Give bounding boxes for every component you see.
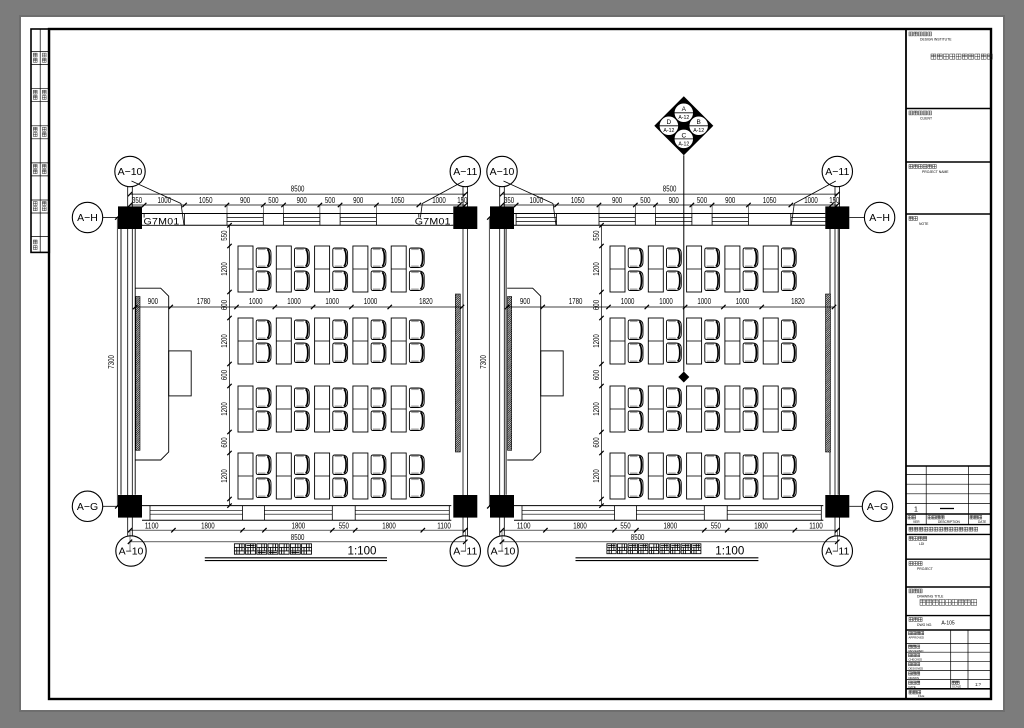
svg-text:550: 550 [220, 230, 229, 241]
svg-text:SCALE: SCALE [952, 685, 961, 689]
svg-text:1800: 1800 [292, 521, 306, 530]
svg-text:1200: 1200 [220, 469, 229, 483]
svg-text:8500: 8500 [291, 533, 305, 542]
svg-text:900: 900 [669, 196, 680, 205]
svg-text:1050: 1050 [199, 196, 213, 205]
svg-text:A-12: A-12 [663, 128, 674, 134]
svg-text:DESCRIPTION: DESCRIPTION [938, 520, 960, 524]
svg-text:1200: 1200 [220, 402, 229, 416]
svg-text:550: 550 [592, 230, 601, 241]
svg-text:350: 350 [504, 196, 515, 205]
svg-text:1800: 1800 [382, 521, 396, 530]
svg-text:1100: 1100 [437, 521, 451, 530]
svg-text:150: 150 [829, 196, 840, 205]
svg-text:1780: 1780 [569, 297, 583, 306]
svg-text:900: 900 [297, 196, 308, 205]
svg-text:1050: 1050 [763, 196, 777, 205]
svg-text:1000: 1000 [659, 297, 673, 306]
svg-text:1200: 1200 [220, 262, 229, 276]
svg-text:DRAWING TITLE: DRAWING TITLE [917, 595, 944, 599]
svg-text:1200: 1200 [220, 334, 229, 348]
svg-text:7300: 7300 [107, 355, 116, 369]
svg-text:B: B [697, 119, 701, 126]
svg-text:1200: 1200 [592, 402, 601, 416]
svg-text:1000: 1000 [530, 196, 544, 205]
svg-text:G7M01: G7M01 [415, 216, 451, 226]
svg-text:600: 600 [220, 299, 229, 310]
svg-text:CLIENT: CLIENT [920, 117, 932, 121]
svg-text:FILE: FILE [918, 694, 924, 698]
svg-text:1820: 1820 [419, 297, 433, 306]
svg-text:DWG NO.: DWG NO. [917, 623, 932, 627]
svg-text:1100: 1100 [517, 521, 531, 530]
svg-text:150: 150 [457, 196, 468, 205]
svg-text:900: 900 [725, 196, 736, 205]
svg-text:550: 550 [339, 521, 350, 530]
svg-text:D: D [667, 119, 672, 126]
svg-text:8500: 8500 [663, 185, 677, 194]
svg-text:DRAWN: DRAWN [909, 676, 919, 680]
svg-text:600: 600 [592, 299, 601, 310]
svg-text:900: 900 [240, 196, 251, 205]
svg-text:A−10: A−10 [490, 166, 515, 178]
svg-text:1:100: 1:100 [715, 543, 744, 557]
svg-text:A−10: A−10 [118, 166, 143, 178]
svg-text:1800: 1800 [664, 521, 678, 530]
svg-text:350: 350 [132, 196, 143, 205]
svg-text:1000: 1000 [158, 196, 172, 205]
svg-text:A−11: A−11 [825, 166, 849, 178]
svg-text:1050: 1050 [571, 196, 585, 205]
svg-text:C: C [681, 132, 686, 139]
svg-text:A−H: A−H [77, 212, 98, 224]
svg-text:VER: VER [913, 520, 920, 524]
svg-text:600: 600 [592, 437, 601, 448]
svg-text:600: 600 [220, 437, 229, 448]
svg-text:500: 500 [640, 196, 651, 205]
svg-text:A−G: A−G [867, 501, 888, 513]
svg-text:1000: 1000 [364, 297, 378, 306]
svg-text:600: 600 [592, 369, 601, 380]
svg-text:900: 900 [353, 196, 364, 205]
svg-text:900: 900 [148, 297, 159, 306]
svg-text:A−10: A−10 [119, 546, 144, 558]
svg-text:DATE: DATE [909, 685, 916, 689]
svg-text:550: 550 [620, 521, 631, 530]
svg-text:DESIGN INSTITUTE: DESIGN INSTITUTE [920, 38, 952, 42]
svg-text:1200: 1200 [592, 334, 601, 348]
svg-text:600: 600 [220, 369, 229, 380]
svg-text:1000: 1000 [249, 297, 263, 306]
svg-text:900: 900 [520, 297, 531, 306]
svg-text:1200: 1200 [592, 469, 601, 483]
svg-text:APPROVED: APPROVED [909, 636, 925, 640]
svg-text:1000: 1000 [325, 297, 339, 306]
svg-text:REVIEWED: REVIEWED [909, 649, 924, 653]
svg-text:1000: 1000 [621, 297, 635, 306]
svg-text:550: 550 [711, 521, 722, 530]
svg-text:1000: 1000 [736, 297, 750, 306]
svg-text:500: 500 [325, 196, 336, 205]
svg-text:8500: 8500 [291, 185, 305, 194]
svg-text:1820: 1820 [791, 297, 805, 306]
svg-text:G7M01: G7M01 [144, 216, 180, 226]
svg-text:A−H: A−H [869, 212, 890, 224]
svg-text:A: A [682, 106, 687, 113]
svg-text:1050: 1050 [391, 196, 405, 205]
svg-text:PROJECT: PROJECT [917, 567, 933, 571]
svg-text:1100: 1100 [809, 521, 823, 530]
svg-text:500: 500 [697, 196, 708, 205]
svg-text:DESIGNED: DESIGNED [909, 667, 924, 671]
svg-text:CHECKED: CHECKED [909, 658, 923, 662]
svg-text:1:100: 1:100 [348, 543, 377, 557]
svg-text:500: 500 [268, 196, 279, 205]
svg-text:A-12: A-12 [678, 115, 689, 121]
svg-text:1100: 1100 [145, 521, 159, 530]
svg-text:1800: 1800 [573, 521, 587, 530]
svg-text:A−11: A−11 [453, 166, 477, 178]
svg-text:A-12: A-12 [678, 141, 689, 147]
svg-text:7300: 7300 [479, 355, 488, 369]
svg-text:A−G: A−G [77, 501, 98, 513]
svg-text:8500: 8500 [631, 533, 645, 542]
svg-text:1780: 1780 [197, 297, 211, 306]
svg-text:A-105: A-105 [941, 621, 955, 627]
svg-text:1200: 1200 [592, 262, 601, 276]
svg-text:NOTE: NOTE [919, 222, 929, 226]
svg-text:LDI: LDI [919, 542, 924, 546]
svg-text:1: 1 [914, 507, 918, 514]
svg-text:1:?: 1:? [975, 682, 981, 687]
svg-text:900: 900 [612, 196, 623, 205]
svg-text:1800: 1800 [201, 521, 215, 530]
svg-text:DATE: DATE [978, 520, 986, 524]
svg-text:1000: 1000 [697, 297, 711, 306]
svg-text:PROJECT NAME: PROJECT NAME [922, 170, 949, 174]
svg-text:1000: 1000 [287, 297, 301, 306]
svg-text:A−10: A−10 [491, 546, 516, 558]
svg-text:A-12: A-12 [693, 128, 704, 134]
svg-text:1800: 1800 [754, 521, 768, 530]
